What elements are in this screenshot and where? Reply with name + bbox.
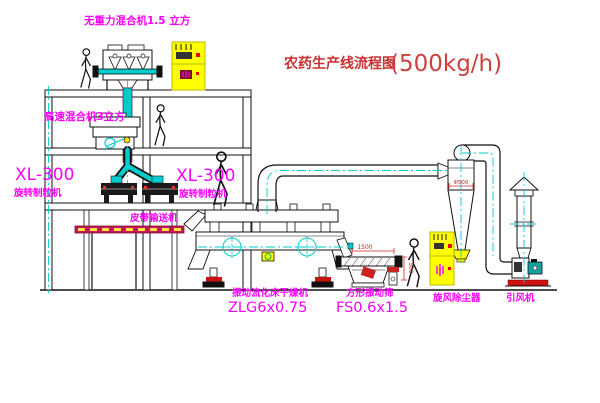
fluid-bed-dryer	[184, 200, 351, 287]
label-granulator-right-model: XL-300	[176, 166, 235, 186]
dim-screen-length: 1500	[357, 244, 372, 251]
cad-flow-diagram: 农药生产线流程图 (500kg/h) 无重力混合机1.5 立方 高速混合机3立方…	[0, 0, 600, 403]
label-fan: 引风机	[506, 292, 535, 304]
label-dryer-name: 振动流化床干燥机	[232, 287, 309, 299]
control-cabinet-1	[172, 42, 205, 90]
label-belt-conveyor: 皮带输送机	[129, 212, 178, 224]
label-granulator-left-name: 旋转制粒机	[13, 187, 62, 199]
control-cabinet-2	[430, 232, 454, 285]
page-title-capacity: (500kg/h)	[390, 51, 502, 77]
granulator-left	[101, 176, 137, 203]
induced-draft-fan	[505, 258, 551, 286]
label-screen-model: FS0.6x1.5	[336, 300, 408, 316]
diagram-svg: 农药生产线流程图 (500kg/h) 无重力混合机1.5 立方 高速混合机3立方…	[0, 0, 600, 403]
label-granulator-left-model: XL-300	[15, 165, 74, 185]
worker-figure-2	[155, 105, 165, 146]
worker-figure-1	[81, 49, 91, 89]
label-gravity-mixer: 无重力混合机1.5 立方	[83, 14, 191, 27]
discharge-pump	[387, 267, 399, 285]
label-screen-name: 方形振动筛	[346, 287, 394, 299]
dim-cyclone-diameter: Φ500	[454, 180, 469, 186]
belt-conveyor	[75, 226, 184, 289]
label-high-speed-mixer: 高速混合机3立方	[44, 110, 125, 123]
dim-screen-height: 500	[407, 262, 414, 274]
label-granulator-right-name: 旋转制粒机	[178, 188, 227, 200]
label-cyclone: 旋风除尘器	[432, 292, 481, 304]
label-dryer-model: ZLG6x0.75	[228, 300, 307, 316]
page-title: 农药生产线流程图	[283, 55, 396, 72]
